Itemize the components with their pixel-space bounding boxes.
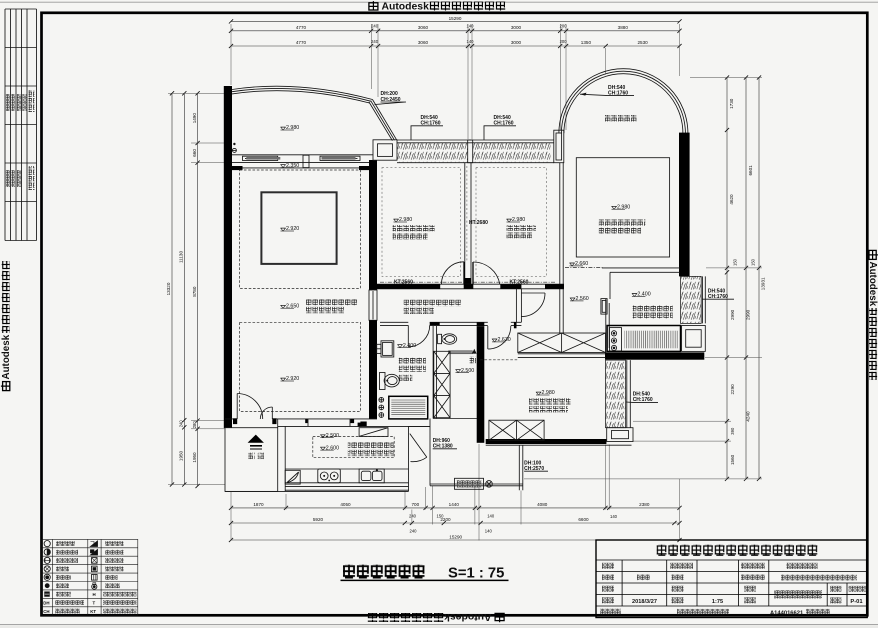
svg-text:280: 280 xyxy=(192,421,197,429)
svg-text:150: 150 xyxy=(751,258,756,266)
svg-text:140: 140 xyxy=(487,514,495,519)
svg-text:2530: 2530 xyxy=(637,40,648,45)
svg-text:S=1 : 75: S=1 : 75 xyxy=(448,566,504,582)
svg-text:140: 140 xyxy=(485,528,493,533)
svg-text:140: 140 xyxy=(610,514,618,519)
svg-text:KT: KT xyxy=(90,609,96,614)
svg-text:2990: 2990 xyxy=(730,309,735,320)
svg-text:8780: 8780 xyxy=(192,286,197,297)
svg-text:3880: 3880 xyxy=(618,25,629,30)
svg-text:2.400: 2.400 xyxy=(403,343,416,349)
svg-text:2018/3/27: 2018/3/27 xyxy=(632,599,657,605)
svg-text:13320: 13320 xyxy=(166,282,171,295)
svg-text:15290: 15290 xyxy=(449,534,462,539)
svg-text:3060: 3060 xyxy=(418,25,429,30)
svg-text:240: 240 xyxy=(179,420,184,428)
svg-text:2.500: 2.500 xyxy=(326,433,339,439)
svg-text:Autodesk: Autodesk xyxy=(382,2,430,13)
svg-text:2.660: 2.660 xyxy=(575,261,588,267)
svg-text:5920: 5920 xyxy=(313,517,324,522)
svg-text:2.560: 2.560 xyxy=(576,296,589,302)
svg-text:13931: 13931 xyxy=(761,277,766,290)
svg-text:2.500: 2.500 xyxy=(461,368,474,374)
svg-text:2.630: 2.630 xyxy=(498,337,511,343)
svg-text:2.920: 2.920 xyxy=(286,226,299,232)
svg-text:2.600: 2.600 xyxy=(326,445,339,451)
svg-text:1490: 1490 xyxy=(192,113,197,124)
svg-text:Autodesk: Autodesk xyxy=(444,611,492,622)
svg-text:1440: 1440 xyxy=(449,502,460,507)
svg-text:240: 240 xyxy=(409,514,417,519)
svg-text:240: 240 xyxy=(371,39,379,44)
svg-text:1950: 1950 xyxy=(179,450,184,461)
svg-text:A144016621: A144016621 xyxy=(770,611,804,617)
svg-text:KT:2560: KT:2560 xyxy=(510,280,529,286)
svg-text:1:75: 1:75 xyxy=(712,599,723,605)
svg-text:DH: DH xyxy=(43,600,49,605)
svg-text:1560: 1560 xyxy=(730,454,735,465)
svg-text:6600: 6600 xyxy=(578,517,589,522)
svg-text:3060: 3060 xyxy=(418,40,429,45)
svg-text:4620: 4620 xyxy=(729,194,734,205)
svg-text:2200: 2200 xyxy=(440,517,451,522)
svg-text:2.400: 2.400 xyxy=(637,292,650,298)
svg-text:2990: 2990 xyxy=(745,309,750,320)
svg-text:2.980: 2.980 xyxy=(512,217,525,223)
svg-text:150: 150 xyxy=(733,258,738,266)
svg-text:4770: 4770 xyxy=(296,40,307,45)
svg-text:4050: 4050 xyxy=(340,502,351,507)
svg-text:140: 140 xyxy=(467,24,475,29)
svg-text:700: 700 xyxy=(411,502,419,507)
svg-text:4080: 4080 xyxy=(537,502,548,507)
svg-text:3000: 3000 xyxy=(511,25,522,30)
svg-text:2.980: 2.980 xyxy=(286,125,299,131)
svg-text:CH: CH xyxy=(43,609,49,614)
svg-text:140: 140 xyxy=(467,39,475,44)
svg-text:2.980: 2.980 xyxy=(399,217,412,223)
svg-text:3000: 3000 xyxy=(511,40,522,45)
svg-text:1350: 1350 xyxy=(581,40,592,45)
svg-text:2.980: 2.980 xyxy=(617,204,630,210)
svg-text:2.920: 2.920 xyxy=(286,376,299,382)
svg-text:11130: 11130 xyxy=(179,251,184,264)
svg-text:1730: 1730 xyxy=(729,98,734,109)
svg-text:1870: 1870 xyxy=(253,502,264,507)
svg-text:HT:2680: HT:2680 xyxy=(469,220,488,226)
svg-text:4770: 4770 xyxy=(296,25,307,30)
svg-text:T: T xyxy=(93,601,96,606)
svg-text:390: 390 xyxy=(730,427,735,435)
svg-text:4240: 4240 xyxy=(745,411,750,422)
svg-text:2380: 2380 xyxy=(639,502,650,507)
svg-text:2.650: 2.650 xyxy=(286,303,299,309)
svg-text:H: H xyxy=(93,592,96,597)
svg-text:240: 240 xyxy=(410,528,418,533)
svg-text:Autodesk: Autodesk xyxy=(1,334,12,379)
svg-text:2.980: 2.980 xyxy=(542,390,555,396)
svg-text:2.350: 2.350 xyxy=(286,163,299,169)
svg-text:660: 660 xyxy=(192,149,197,157)
svg-text:1950: 1950 xyxy=(192,452,197,463)
svg-text:2290: 2290 xyxy=(730,384,735,395)
svg-text:KT:2560: KT:2560 xyxy=(394,280,413,286)
svg-text:Autodesk: Autodesk xyxy=(867,262,878,307)
svg-text:6601: 6601 xyxy=(748,165,753,176)
svg-text:P-01: P-01 xyxy=(850,599,863,605)
svg-text:15290: 15290 xyxy=(449,16,462,21)
svg-text:240: 240 xyxy=(371,24,379,29)
